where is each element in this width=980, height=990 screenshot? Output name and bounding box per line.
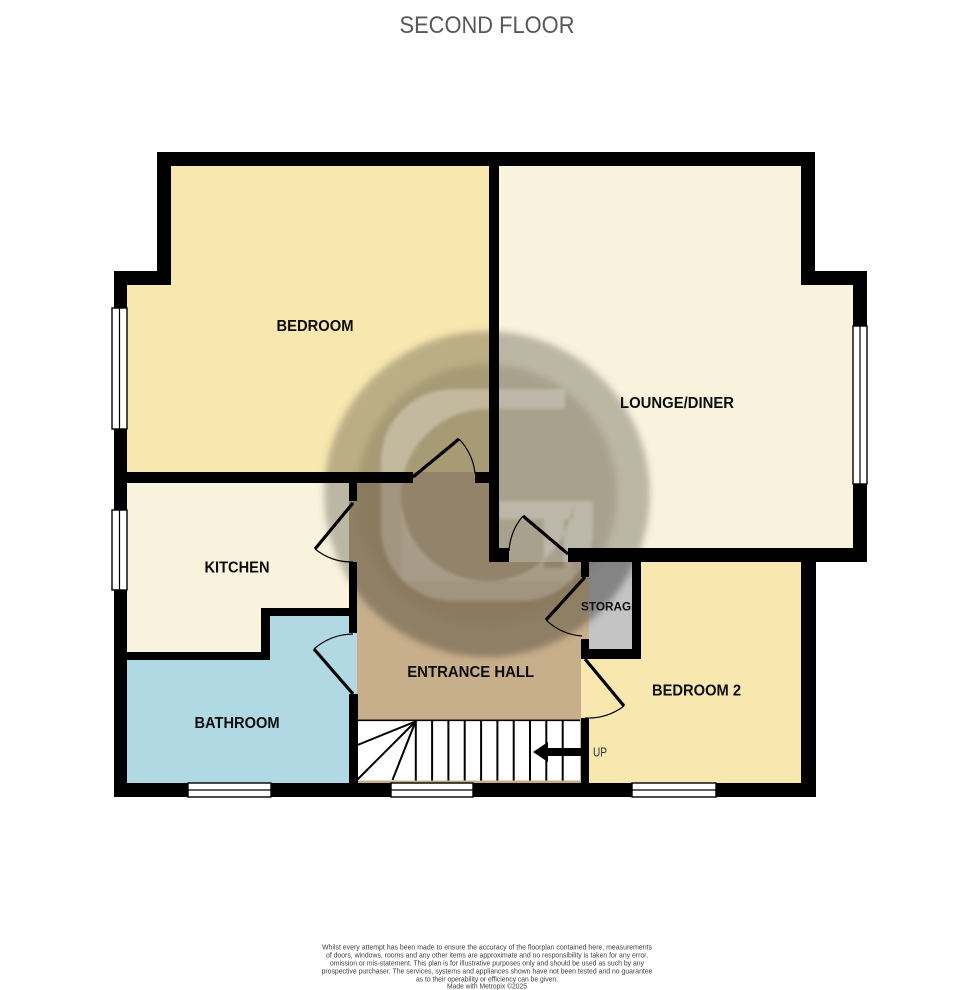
svg-text:SECOND FLOOR: SECOND FLOOR xyxy=(400,12,575,39)
svg-text:BEDROOM 2: BEDROOM 2 xyxy=(652,683,741,700)
svg-text:Made with Metropix ©2025: Made with Metropix ©2025 xyxy=(447,982,527,990)
svg-text:STORAGE: STORAGE xyxy=(581,600,639,614)
svg-text:ENTRANCE HALL: ENTRANCE HALL xyxy=(407,664,534,681)
svg-text:BEDROOM: BEDROOM xyxy=(277,318,354,335)
svg-text:UP: UP xyxy=(593,745,607,760)
svg-text:BATHROOM: BATHROOM xyxy=(195,715,280,732)
svg-text:KITCHEN: KITCHEN xyxy=(205,560,270,577)
svg-text:LOUNGE/DINER: LOUNGE/DINER xyxy=(620,395,734,412)
